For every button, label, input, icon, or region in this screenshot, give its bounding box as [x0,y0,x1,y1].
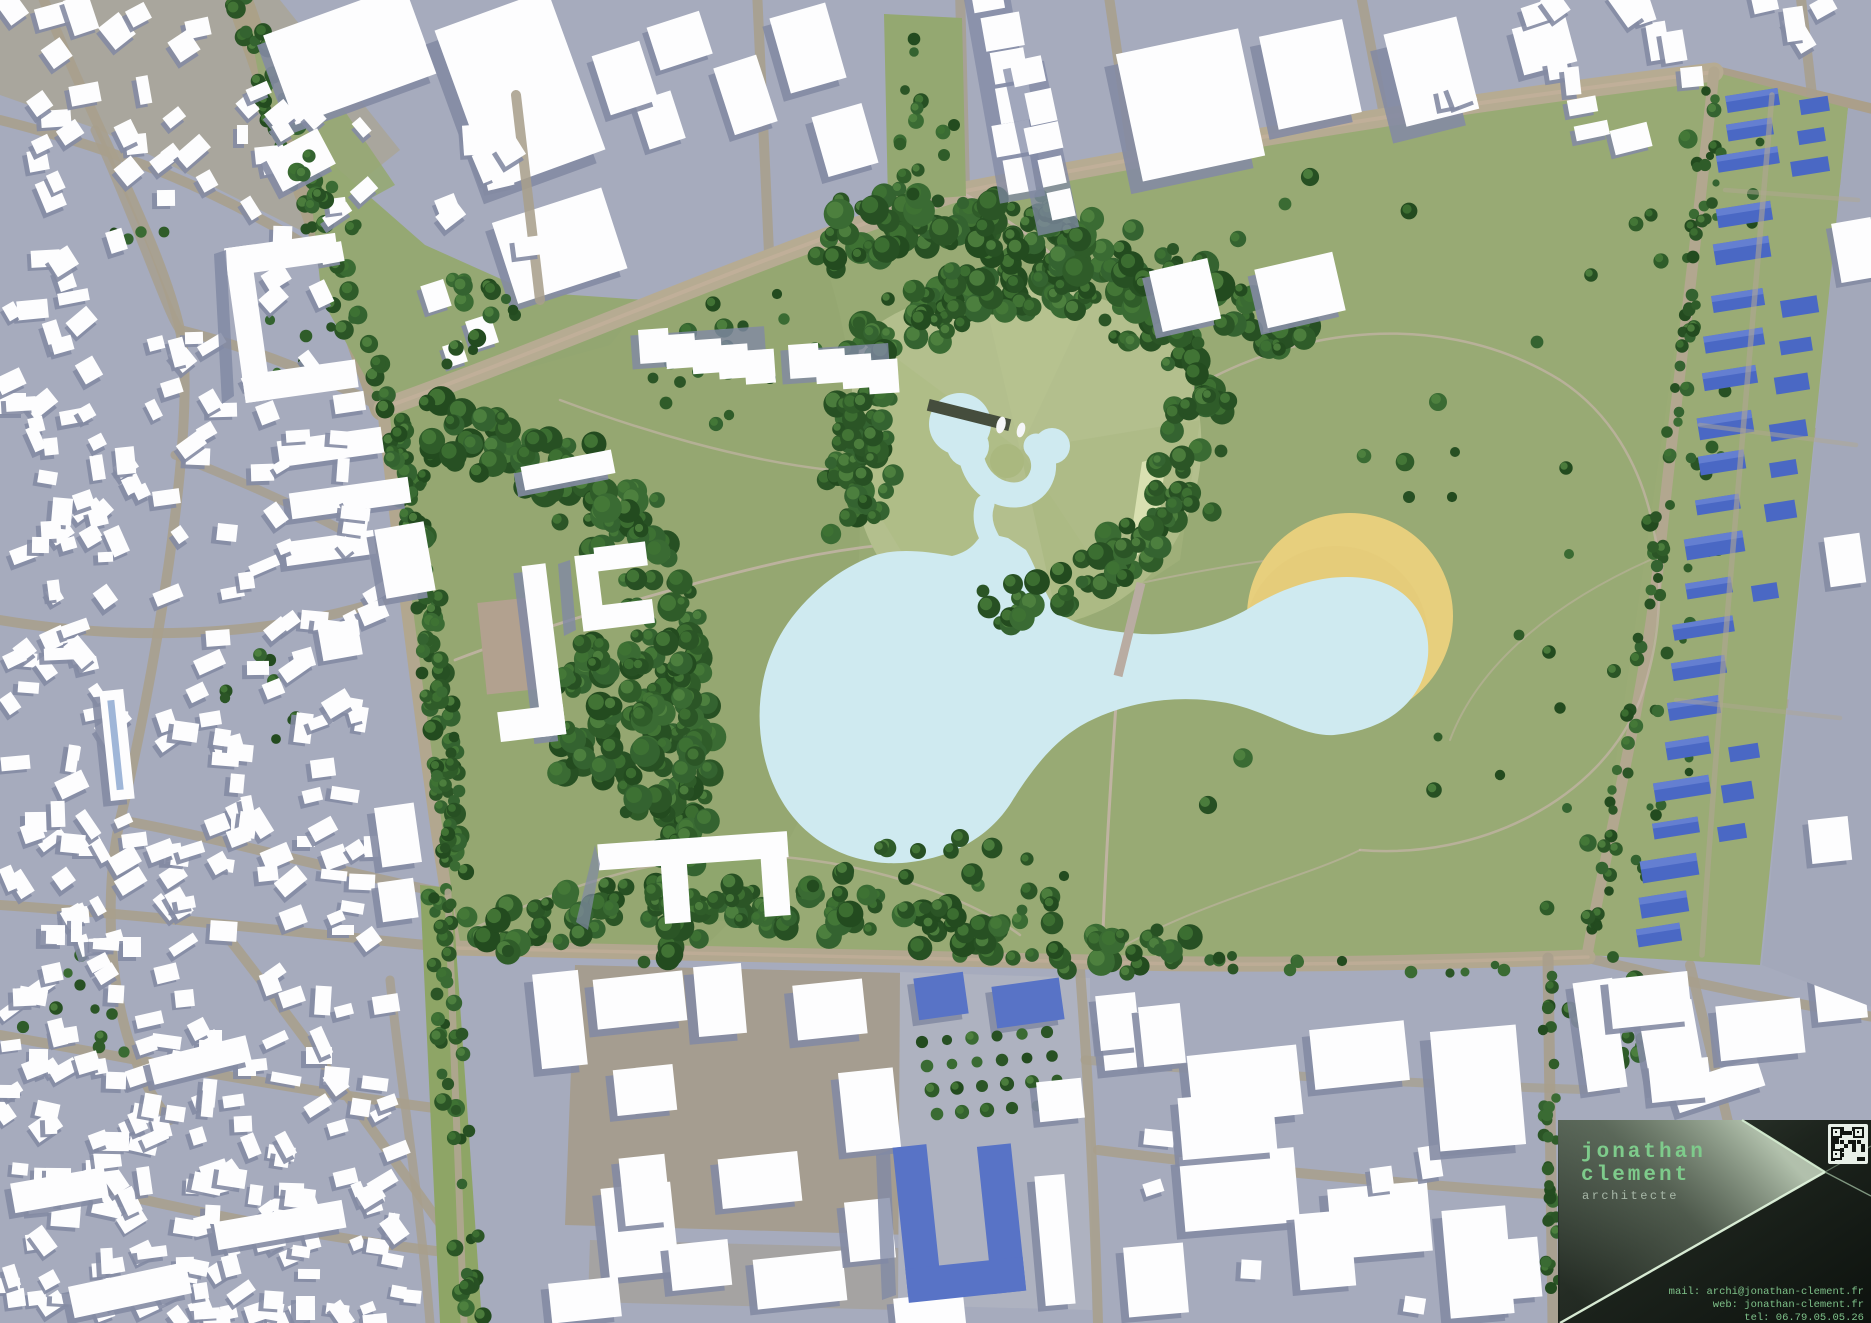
svg-text:tel: 06.79.05.05.26: tel: 06.79.05.05.26 [1744,1312,1864,1323]
svg-text:architecte: architecte [1582,1189,1679,1203]
svg-text:jonathan: jonathan [1581,1141,1706,1164]
svg-text:mail: archi@jonathan-clement.f: mail: archi@jonathan-clement.fr [1669,1286,1864,1298]
svg-text:clement: clement [1581,1164,1690,1187]
svg-text:web: jonathan-clement.fr: web: jonathan-clement.fr [1713,1299,1864,1311]
